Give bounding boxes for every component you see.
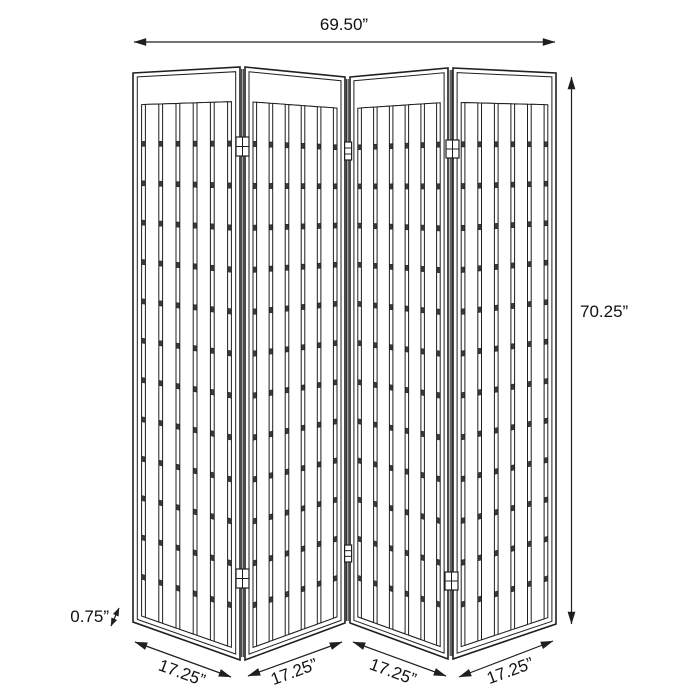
width-dimension-label: 69.50” — [320, 15, 369, 34]
lattice-slat — [180, 103, 193, 634]
lattice-slat — [515, 104, 528, 629]
product-dimension-diagram: 69.50” 70.25” 17.25” 17.25” 17.25” 17.25… — [0, 0, 700, 700]
lattice-slat — [393, 105, 405, 634]
hinge-connector — [446, 140, 459, 158]
lattice-slat — [214, 102, 227, 646]
hinge-body — [345, 545, 352, 562]
lattice-slat — [145, 104, 158, 622]
panel3-width-label: 17.25” — [367, 655, 419, 689]
lattice-slat — [482, 103, 495, 640]
divider-panel-3 — [350, 68, 448, 659]
hinge-connector — [445, 572, 458, 590]
lattice-slat — [163, 104, 176, 629]
hinge-connector-narrow — [345, 545, 352, 562]
hinge-connector — [236, 569, 249, 588]
divider-panel-4 — [453, 68, 556, 659]
panel1-width-label: 17.25” — [156, 656, 208, 690]
lattice-slat — [305, 106, 318, 629]
height-dimension-label: 70.25” — [580, 302, 629, 321]
lattice-slat — [257, 102, 270, 646]
lattice-slat — [465, 103, 478, 646]
panel4-width-label: 17.25” — [484, 654, 536, 688]
lattice-slat — [409, 104, 421, 640]
room-divider-line-drawing: 69.50” 70.25” 17.25” 17.25” 17.25” 17.25… — [0, 0, 700, 700]
thickness-arrow — [111, 608, 119, 626]
hinge-connector — [236, 137, 249, 156]
divider-panel-1 — [133, 67, 240, 660]
lattice-slat — [377, 106, 389, 628]
lattice-slat — [197, 102, 210, 640]
hinge-connector-narrow — [345, 142, 352, 160]
thickness-label: 0.75” — [70, 607, 109, 626]
lattice-slat — [273, 103, 286, 640]
lattice-slat — [498, 104, 511, 635]
lattice-slat — [361, 107, 373, 622]
lattice-slat — [531, 104, 544, 623]
lattice-slat — [424, 103, 436, 645]
lattice-slat — [321, 107, 334, 623]
lattice-slat — [289, 105, 301, 635]
hinge-body — [345, 142, 352, 160]
divider-panel-2 — [245, 67, 345, 660]
